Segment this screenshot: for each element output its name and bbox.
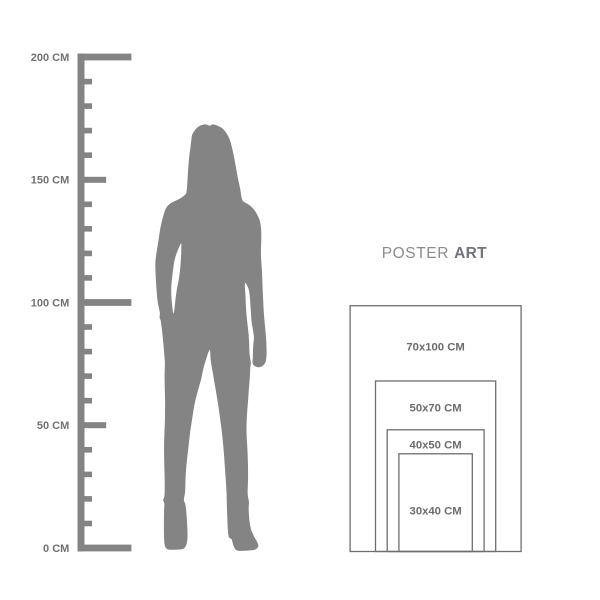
svg-text:40x50 CM: 40x50 CM [410,440,462,452]
svg-text:0 CM: 0 CM [43,543,69,555]
svg-text:70x100 CM: 70x100 CM [406,341,464,353]
svg-text:50 CM: 50 CM [37,420,69,432]
svg-text:POSTERART: POSTERART [382,245,487,262]
svg-text:200 CM: 200 CM [31,52,70,64]
svg-text:50x70 CM: 50x70 CM [410,403,462,415]
svg-text:30x40 CM: 30x40 CM [410,505,462,517]
svg-text:100 CM: 100 CM [31,297,70,309]
svg-text:150 CM: 150 CM [31,175,70,187]
